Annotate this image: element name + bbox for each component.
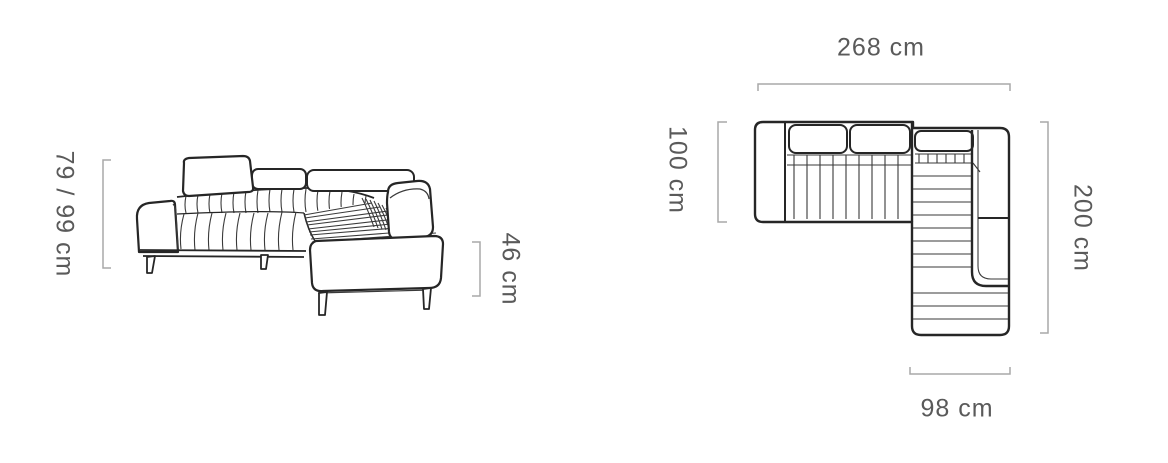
plan-left-seams	[787, 155, 911, 165]
dim-bracket-total-width	[758, 84, 1010, 91]
base-rail	[140, 250, 306, 257]
dim-label-chaise-width: 98 cm	[920, 395, 993, 424]
dim-bracket-seat-height	[472, 242, 480, 296]
seat-crease-line	[177, 212, 304, 214]
dim-bracket-chaise-width	[910, 367, 1010, 374]
plan-left-ticks	[794, 155, 898, 165]
headrest	[183, 156, 253, 196]
plan-back-cushion-right	[850, 125, 910, 153]
sofa-dimension-diagram: 79 / 99 cm 46 cm 268 cm 100 cm 200 cm 98…	[0, 0, 1168, 463]
dim-bracket-height	[103, 160, 111, 268]
sofa-side-view	[137, 156, 443, 315]
sofa-top-view	[755, 122, 1009, 335]
plan-left-hatch	[794, 165, 898, 219]
plan-back-cushion-left	[789, 125, 847, 153]
dim-label-total-depth: 200 cm	[1068, 184, 1097, 272]
plan-corner-seams	[915, 154, 980, 172]
dim-label-height: 79 / 99 cm	[50, 151, 79, 278]
plan-right-armrest-inner	[972, 130, 1008, 286]
plan-corner-cushion	[915, 131, 973, 151]
plan-chaise-hatch-lower	[913, 293, 1008, 319]
plan-right-armrest-inner-line	[978, 130, 1008, 279]
plan-chaise-hatch-upper	[913, 176, 972, 267]
plan-corner-ticks	[919, 154, 964, 163]
seat-ribs	[180, 212, 296, 250]
dim-label-seat-height: 46 cm	[496, 232, 525, 305]
chaise-ottoman	[310, 236, 443, 291]
dim-bracket-section-depth	[718, 122, 727, 222]
left-armrest	[137, 201, 178, 252]
dim-label-total-width: 268 cm	[837, 34, 925, 63]
dimension-brackets	[103, 84, 1048, 374]
dim-bracket-total-depth	[1040, 122, 1048, 333]
dim-label-section-depth: 100 cm	[663, 126, 692, 214]
back-pad-left	[252, 169, 306, 189]
